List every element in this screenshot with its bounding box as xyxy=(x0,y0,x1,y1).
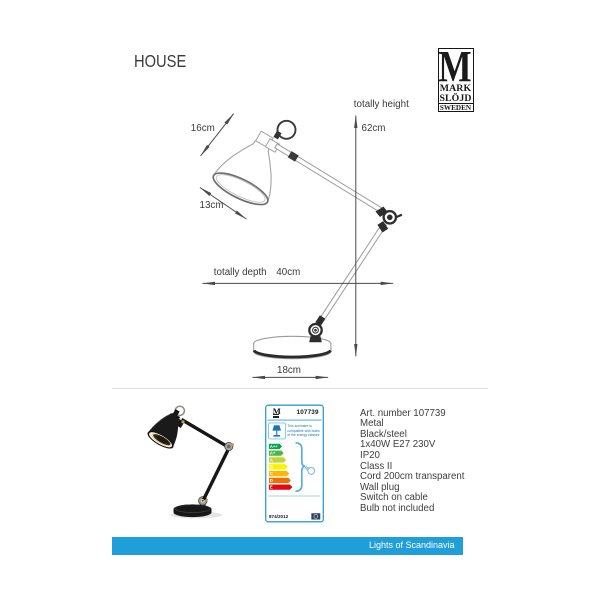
svg-text:A+: A+ xyxy=(270,451,276,456)
svg-text:D: D xyxy=(270,478,273,483)
svg-text:C: C xyxy=(270,471,273,476)
svg-text:B: B xyxy=(270,464,273,469)
svg-text:A++: A++ xyxy=(270,444,278,449)
svg-text:E: E xyxy=(270,485,273,490)
svg-text:A: A xyxy=(270,458,273,463)
